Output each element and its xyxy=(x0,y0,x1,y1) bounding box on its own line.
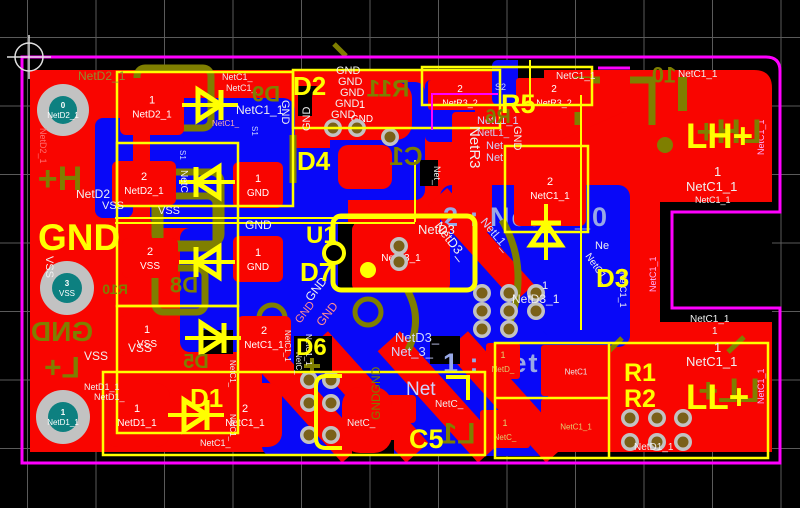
pad-net-label: NetC_ xyxy=(494,433,517,442)
pad-NetD2_1[interactable]: 1NetD2_1 xyxy=(120,78,184,135)
pad-number: 1 xyxy=(61,408,66,417)
designator-bottom-C1[interactable]: C1 xyxy=(389,141,422,171)
net-label: NetC1_1 xyxy=(648,256,658,292)
pad-number: 2 xyxy=(242,403,248,415)
designator-top-D4[interactable]: D4 xyxy=(297,146,331,176)
net-label: NetD1_1 xyxy=(84,382,120,392)
pad-net-label: NetC1_1 xyxy=(530,191,570,202)
net-label: NetC_ xyxy=(435,399,464,410)
designator-top-D2[interactable]: D2 xyxy=(293,71,326,101)
designator-bottom-D9[interactable]: D9 xyxy=(252,82,280,107)
net-label: NetC1_1 xyxy=(678,69,718,80)
net-label: NetC1_1 xyxy=(695,195,731,205)
pad-NetC1_1[interactable]: NetC1_1 xyxy=(541,399,611,452)
pad-net-label: NetC1_1 xyxy=(244,340,284,351)
pad-number: 1 xyxy=(502,418,507,428)
pad-NetC1[interactable]: NetC1 xyxy=(541,345,611,396)
pad-GND[interactable]: 1GND xyxy=(233,162,283,208)
designator-top-R1[interactable]: R1 xyxy=(624,359,656,387)
net-label: VSS xyxy=(43,256,55,278)
pad-NetC1_1[interactable]: 2NetC1_1 xyxy=(237,316,291,358)
net-label: Net_ xyxy=(432,166,442,186)
pcb-editor-canvas[interactable]: 2 : NetL1_0 1 : Net 1NetD2_12NetD2_12VSS… xyxy=(0,0,800,508)
net-label: Net xyxy=(406,379,436,400)
designator-top-C5[interactable]: C5 xyxy=(409,424,444,454)
designator-top-D3[interactable]: D3 xyxy=(596,263,629,293)
fiducial-dot xyxy=(657,137,673,153)
pad-net-label: NetD2_1 xyxy=(124,186,164,197)
pad-number: 1 xyxy=(134,403,140,415)
pad-number: 2 xyxy=(141,171,147,183)
pad-number: 1 xyxy=(500,350,505,360)
pad-net-label: NetD2_1 xyxy=(132,110,172,121)
net-label: GNDGND xyxy=(369,366,383,420)
pad-NetC_[interactable]: 1NetC_ xyxy=(480,410,530,448)
pad-NetC1_1[interactable]: 2NetC1_1 xyxy=(514,150,586,226)
pad-net-label: NetC1_1 xyxy=(560,423,592,432)
net-label: NetC xyxy=(178,170,189,193)
pad[interactable] xyxy=(338,145,392,189)
net-label: S1 xyxy=(178,150,187,160)
designator-bottom-GND[interactable]: GND xyxy=(31,316,93,347)
net-label: GND xyxy=(245,218,272,232)
net-label: 1 xyxy=(714,340,721,355)
pad-net-label: NetD2_1 xyxy=(47,111,79,120)
via[interactable] xyxy=(473,302,491,320)
net-label: NetD2_1 xyxy=(38,128,48,164)
silk-label-ll: LL+ xyxy=(686,378,749,417)
silk-label-lh: LH+ xyxy=(686,117,753,156)
pad-number: 1 xyxy=(144,324,150,336)
ic-pin1-dot xyxy=(360,262,376,278)
net-label: Ne xyxy=(595,240,609,252)
pad-net-label: NetD1_1 xyxy=(47,418,79,427)
designator-bottom-L+[interactable]: L+ xyxy=(44,352,80,385)
net-label: VSS xyxy=(158,205,180,217)
pad-number: 1 xyxy=(149,95,155,107)
designator-bottom-R10[interactable]: R10 xyxy=(102,281,128,297)
designator-top-D7[interactable]: D7 xyxy=(300,257,333,287)
net-label: NetD2_1 xyxy=(78,69,126,83)
net-label: NetC1_1 xyxy=(686,354,737,369)
pad-number: 0 xyxy=(61,101,66,110)
net-label: NetC1_1 xyxy=(686,179,737,194)
pad-VSS[interactable]: 2VSS xyxy=(122,238,178,278)
pad-net-label: VSS xyxy=(140,261,160,272)
designator-top-D6[interactable]: D6 xyxy=(296,334,327,361)
via[interactable] xyxy=(390,237,408,255)
pad-net-label: NetR3_2 xyxy=(442,98,478,108)
designator-bottom-D8[interactable]: D8 xyxy=(170,273,198,298)
pad-net-label: VSS xyxy=(59,289,75,298)
pad-number: 3 xyxy=(65,279,70,288)
net-label: 1 xyxy=(542,280,548,292)
via[interactable] xyxy=(322,394,340,412)
designator-bottom-L1[interactable]: L1 xyxy=(440,418,475,451)
net-label: VSS xyxy=(102,200,124,212)
pad-NetD_[interactable]: 1NetD_ xyxy=(486,343,520,379)
net-label: GND xyxy=(331,109,356,121)
designator-bottom-D5[interactable]: D5 xyxy=(183,351,209,373)
net-label: NetD1_1 xyxy=(634,442,674,453)
pad-net-label: NetC1 xyxy=(565,368,588,377)
pad-number: 2 xyxy=(547,176,553,188)
net-label: NetC1_1 xyxy=(690,314,730,325)
via[interactable] xyxy=(390,253,408,271)
net-label: 1 xyxy=(712,326,718,337)
pcb-layout-view[interactable]: 2 : NetL1_0 1 : Net 1NetD2_12NetD2_12VSS… xyxy=(0,0,800,508)
net-label: NetC1_ xyxy=(228,360,237,388)
designator-top-U1[interactable]: U1 xyxy=(306,222,337,249)
net-label: VSS xyxy=(128,341,152,355)
net-label: Net_3_ xyxy=(391,344,434,359)
net-label: NetC1_1 xyxy=(283,330,292,362)
net-label: NetD1_ xyxy=(94,392,126,402)
pad-net-label: GND xyxy=(247,188,269,199)
through-hole-pad-NetD1_1[interactable]: 1NetD1_1 xyxy=(36,390,90,444)
net-label: NetC1_ xyxy=(212,119,240,128)
net-label: Net xyxy=(486,140,503,152)
net-label: NetC1_1 xyxy=(556,71,596,82)
designator-top-D1[interactable]: D1 xyxy=(190,383,223,413)
net-label: NetD3_ xyxy=(395,330,440,345)
via[interactable] xyxy=(473,320,491,338)
net-label: 1 xyxy=(714,164,721,179)
net-label: GND xyxy=(511,126,523,151)
designator-top-R2[interactable]: R2 xyxy=(624,385,656,413)
pad-number: 1 xyxy=(255,247,261,259)
net-label: S1 xyxy=(250,126,259,136)
pad-net-label: NetR3_2 xyxy=(536,98,572,108)
via[interactable] xyxy=(322,426,340,444)
pad-GND[interactable]: 1GND xyxy=(233,236,283,282)
pad-net-label: GND xyxy=(247,262,269,273)
designator-bottom-H+[interactable]: H+ xyxy=(38,160,82,198)
pad-NetD2_1[interactable]: 2NetD2_1 xyxy=(112,161,176,205)
net-label: NetL1_ xyxy=(477,128,510,139)
pad-number: 2 xyxy=(551,84,557,95)
silk-label-gnd: GND xyxy=(38,217,120,258)
pad-net-label: NetD1_1 xyxy=(117,418,157,429)
net-label: GND xyxy=(301,107,313,132)
net-label: Net xyxy=(486,152,503,164)
net-label: VSS xyxy=(84,349,108,363)
pad-number: 1 xyxy=(359,99,365,111)
via[interactable] xyxy=(322,371,340,389)
board-cutout-void xyxy=(660,202,772,322)
designator-top-R5[interactable]: R5 xyxy=(501,89,536,119)
pad-number: 2 xyxy=(261,325,267,337)
net-label: NetD3_1 xyxy=(512,292,560,306)
designator-bottom-R11[interactable]: R11 xyxy=(367,75,410,102)
via[interactable] xyxy=(674,433,692,451)
via[interactable] xyxy=(500,320,518,338)
net-label: NetC1_ xyxy=(200,438,232,448)
pad-number: 2 xyxy=(147,246,153,258)
designator-bottom-10[interactable]: 10 xyxy=(652,63,676,88)
net-label: NetC1_ xyxy=(222,72,254,82)
pad-number: 1 xyxy=(255,173,261,185)
